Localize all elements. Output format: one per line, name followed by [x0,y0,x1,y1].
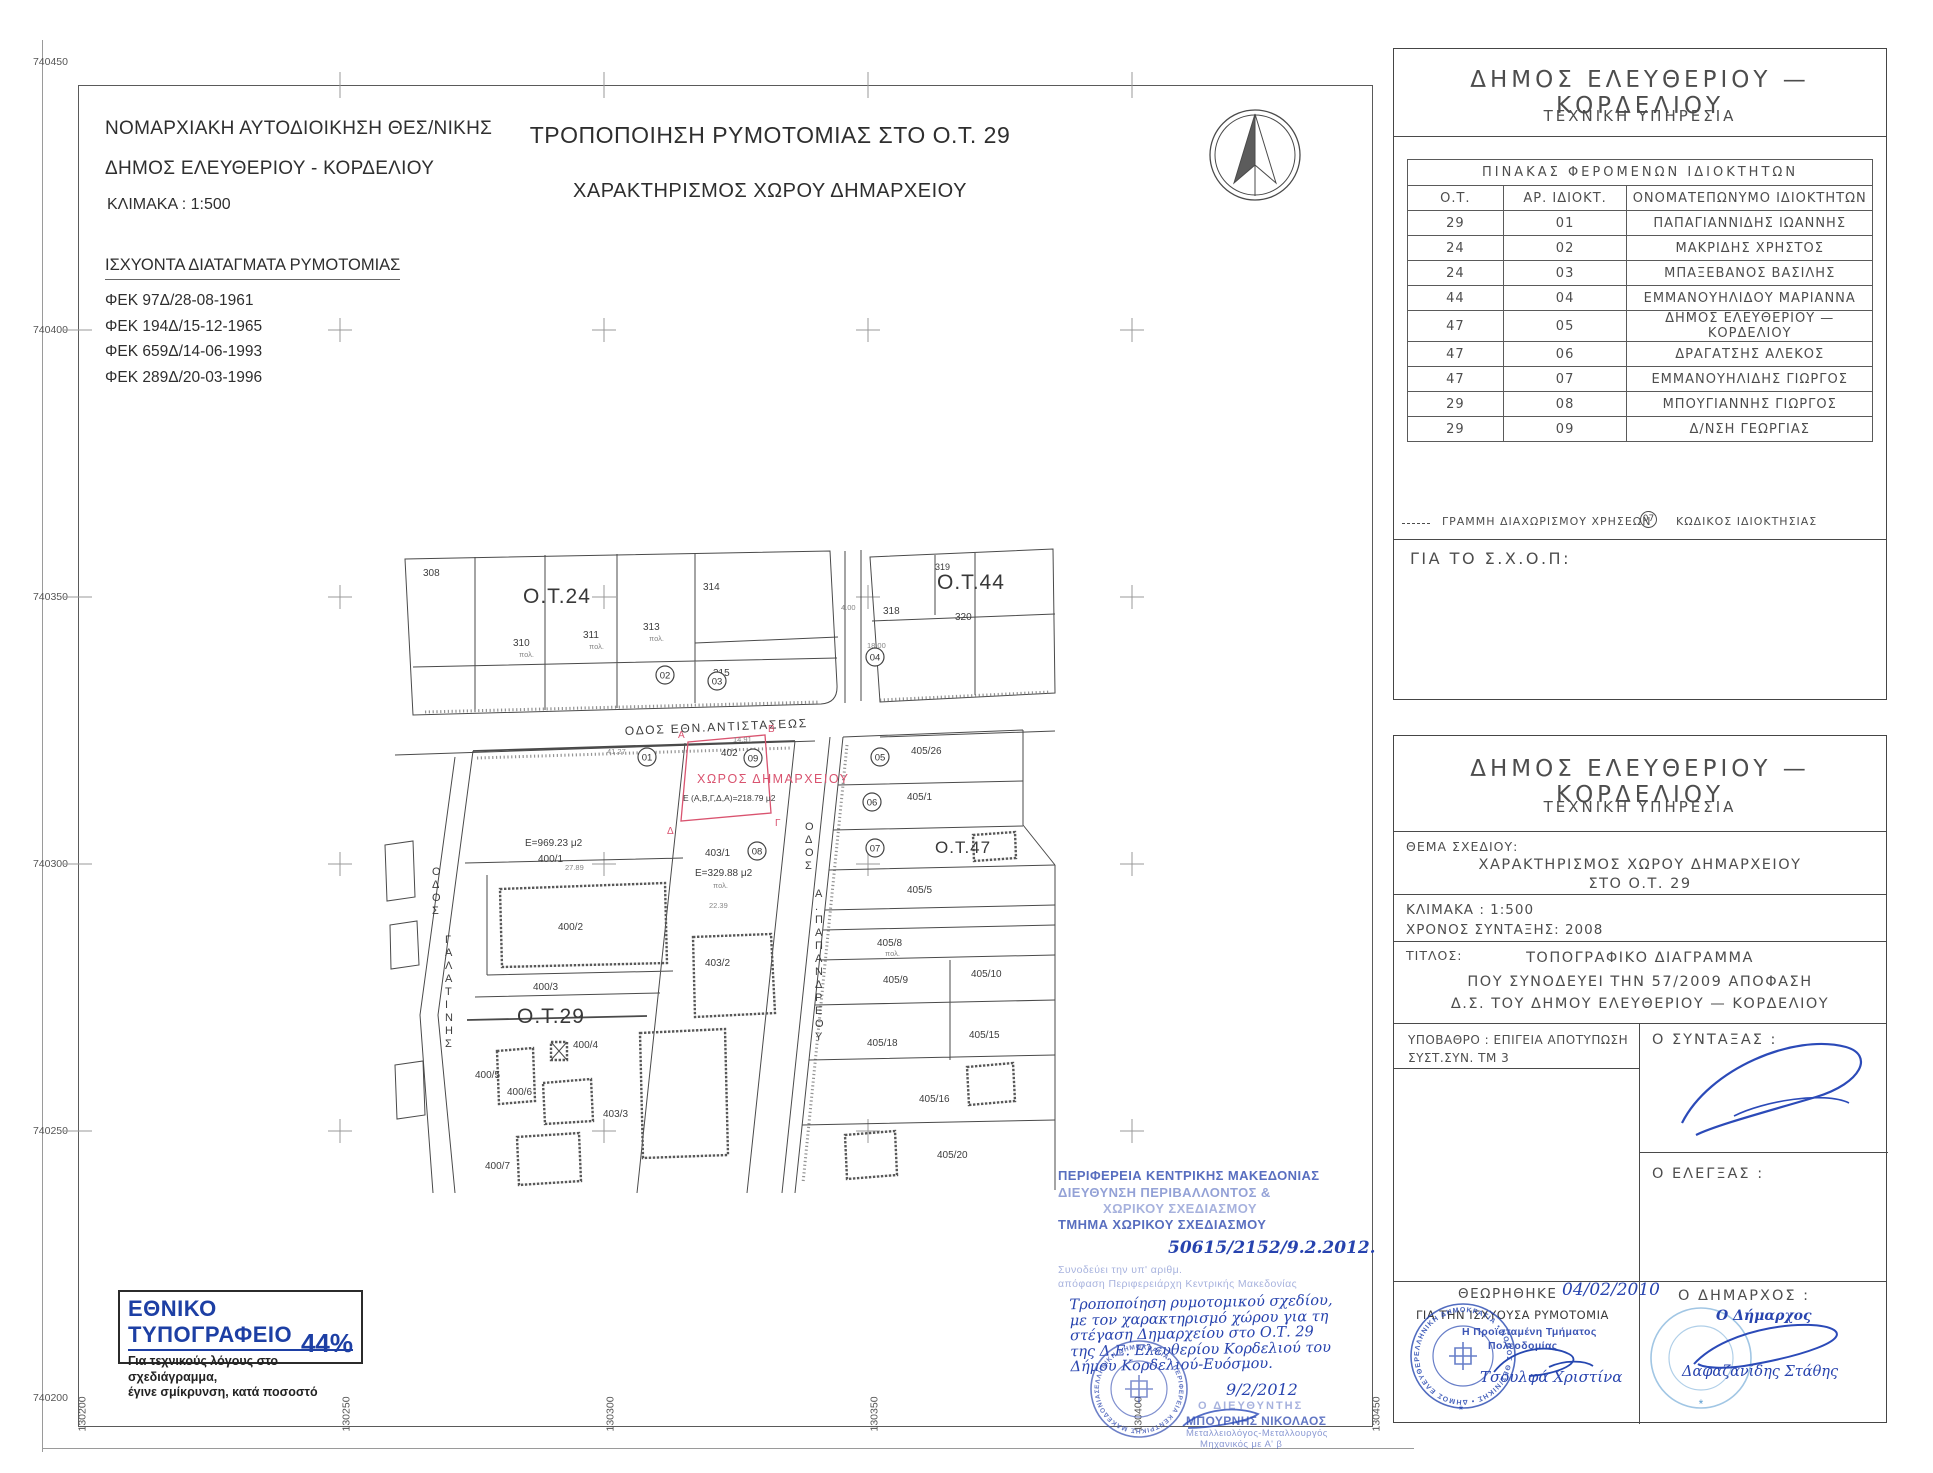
code-06: 06 [863,793,881,811]
code-03: 03 [708,672,726,690]
decree-item: ΦΕΚ 97Δ/28-08-1961 [105,288,400,314]
svg-text:03: 03 [712,677,723,688]
titlos-line1: ΤΟΠΟΓΡΑΦΙΚΟ ΔΙΑΓΡΑΜΜΑ [1394,950,1886,966]
parcel-314: 314 [703,582,720,593]
decrees-heading: ΙΣΧΥΟΝΤΑ ΔΙΑΤΑΓΜΑΤΑ ΡΥΜΟΤΟΜΙΑΣ [105,256,400,280]
table-row: 2402ΜΑΚΡΙΔΗΣ ΧΡΗΣΤΟΣ [1408,236,1873,261]
drawing-sheet: 740450 740400 740350 740300 740250 74020… [0,0,1933,1473]
syntaxas-signature [1674,1031,1879,1146]
legend-ownership-code: ΚΩΔΙΚΟΣ ΙΔΙΟΚΤΗΣΙΑΣ [1676,515,1817,528]
region-line2: ΔΙΕΥΘΥΝΣΗ ΠΕΡΙΒΑΛΛΟΝΤΟΣ & [1058,1185,1271,1200]
authority-line: ΝΟΜΑΡΧΙΑΚΗ ΑΥΤΟΔΙΟΙΚΗΣΗ ΘΕΣ/ΝΙΚΗΣ [105,118,492,140]
dim-27-89: 27.89 [565,863,584,872]
titlos-line3: Δ.Σ. ΤΟΥ ΔΗΜΟΥ ΕΛΕΥΘΕΡΙΟΥ — ΚΟΡΔΕΛΙΟΥ [1394,996,1886,1012]
col-header-name: ΟΝΟΜΑΤΕΠΩΝΥΜΟ ΙΔΙΟΚΤΗΤΩΝ [1627,186,1873,211]
table-row: 2908ΜΠΟΥΓΙΑΝΝΗΣ ΓΙΩΡΓΟΣ [1408,392,1873,417]
svg-text:02: 02 [660,671,671,682]
table-row: 4705ΔΗΜΟΣ ΕΛΕΥΘΕΡΙΟΥ — ΚΟΡΔΕΛΙΟΥ [1408,311,1873,342]
parcel-400-5: 400/5 [475,1070,500,1081]
pol-note: πολ. [713,881,728,890]
municipality-line: ΔΗΜΟΣ ΕΛΕΥΘΕΡΙΟΥ - ΚΟΡΔΕΛΙΟΥ [105,158,434,180]
table-row: 4706ΔΡΑΓΑΤΣΗΣ ΑΛΕΚΟΣ [1408,342,1873,367]
parcel-400-1: 400/1 [538,854,563,865]
area-403-1: Ε=329.88 μ2 [695,868,753,879]
ypovathro-label: ΥΠΟΒΑΘΡΟ : ΕΠΙΓΕΙΑ ΑΠΟΤΥΠΩΣΗ [1408,1033,1628,1047]
pol-note: πολ. [885,949,900,958]
parcel-405-8: 405/8 [877,938,902,949]
code-09: 09 [744,749,762,767]
table-row: 4404ΕΜΜΑΝΟΥΗΛΙΔΟΥ ΜΑΡΙΑΝΝΑ [1408,286,1873,311]
parcel-403-3: 403/3 [603,1109,628,1120]
scale-value: ΚΛΙΜΑΚΑ : 1:500 [1406,902,1534,918]
parcel-311: 311 [583,630,599,641]
parcel-405-9: 405/9 [883,975,908,986]
owners-panel: ΔΗΜΟΣ ΕΛΕΥΘΕΡΙΟΥ — ΚΟΡΔΕΛΙΟΥ ΤΕΧΝΙΚΗ ΥΠΗ… [1393,48,1887,700]
parcel-405-20: 405/20 [937,1150,968,1161]
scale-line: ΚΛΙΜΑΚΑ : 1:500 [107,196,231,214]
dashed-line-sample [1402,523,1430,524]
elegxas-label: Ο ΕΛΕΓΞΑΣ : [1652,1166,1764,1182]
parcel-400-6: 400/6 [507,1087,532,1098]
svg-text:01: 01 [642,753,653,764]
town-hall-area: Ε (Α,Β,Γ,Δ,Α)=218.79 μ2 [683,793,776,803]
region-date: 9/2/2012 [1226,1380,1298,1399]
code-08: 08 [748,842,766,860]
panel-dept: ΤΕΧΝΙΚΗ ΥΠΗΡΕΣΙΑ [1394,798,1886,816]
parcel-400-4: 400/4 [573,1040,598,1051]
svg-text:07: 07 [870,844,881,855]
area-400-1: Ε=969.23 μ2 [525,838,583,849]
corner-g: Γ [775,818,781,829]
parcel-320: 320 [955,612,972,623]
svg-text:05: 05 [875,753,886,764]
national-printing-office-box: ΕΘΝΙΚΟ ΤΥΠΟΓΡΑΦΕΙΟ Για τεχνικούς λόγους … [118,1290,363,1364]
thema-line2: ΣΤΟ Ο.Τ. 29 [1394,876,1886,892]
corner-a: Α [678,730,685,741]
north-arrow-icon [1205,105,1305,205]
owners-table-title: ΠΙΝΑΚΑΣ ΦΕΡΟΜΕΝΩΝ ΙΔΙΟΚΤΗΤΩΝ [1408,160,1873,186]
svg-text:06: 06 [867,798,878,809]
decree-item: ΦΕΚ 289Δ/20-03-1996 [105,365,400,391]
parcel-313: 313 [643,622,660,633]
street-label-papandreou: Α.ΠΑΠΑΝΔΡΕΟΥ [815,888,824,1043]
code-05: 05 [871,748,889,766]
street-label-galatinis: ΓΑΛΑΤΙΝΗΣ [445,934,453,1050]
hellenic-republic-stamp-icon: ΕΛΛΗΝΙΚΗ ΔΗΜΟΚΡΑΤΙΑ • ΠΕΡΙΦΕΡΕΙΑ ΚΕΝΤΡΙΚ… [1082,1332,1197,1447]
cadastral-map: Ο.Τ.24 Ο.Τ.44 Ο.Τ.29 Ο.Τ.47 ΟΔΟΣ ΕΘΝ.ΑΝΤ… [375,545,1225,1215]
table-row: 4707ΕΜΜΑΝΟΥΗΛΙΔΗΣ ΓΙΩΡΓΟΣ [1408,367,1873,392]
for-schop-label: ΓΙΑ ΤΟ Σ.Χ.Ο.Π: [1410,549,1571,568]
syst-label: ΣΥΣΤ.ΣΥΝ. ΤΜ 3 [1408,1051,1509,1065]
parcel-405-1: 405/1 [907,792,932,803]
block-label-ot29: Ο.Τ.29 [517,1005,585,1028]
year-value: ΧΡΟΝΟΣ ΣΥΝΤΑΞΗΣ: 2008 [1406,922,1603,938]
svg-text:09: 09 [748,754,759,765]
parcel-319: 319 [935,562,950,572]
dim-41-27: 41.27 [607,747,626,756]
table-row: 2901ΠΑΠΑΓΙΑΝΝΙΔΗΣ ΙΩΑΝΝΗΣ [1408,211,1873,236]
stamp-star: * [1459,1403,1464,1417]
col-header-ot: Ο.Τ. [1408,186,1504,211]
parcel-405-10: 405/10 [971,969,1002,980]
parcel-405-15: 405/15 [969,1030,1000,1041]
page-subtitle: ΧΑΡΑΚΤΗΡΙΣΜΟΣ ΧΩΡΟΥ ΔΗΜΑΡΧΕΙΟΥ [460,180,1080,203]
street-label-odos-galatinis-1: ΟΔΟΣ [432,866,441,917]
pol-note: πολ. [589,642,604,651]
parcel-405-16: 405/16 [919,1094,950,1105]
parcel-402: 402 [721,748,738,759]
legend-uses-line: ΓΡΑΜΜΗ ΔΙΑΧΩΡΙΣΜΟΥ ΧΡΗΣΕΩΝ [1442,515,1651,528]
pol-note: πολ. [519,650,534,659]
region-faint2: απόφαση Περιφερειάρχη Κεντρικής Μακεδονί… [1058,1278,1297,1290]
block-label-ot24: Ο.Τ.24 [523,585,591,608]
decree-item: ΦΕΚ 659Δ/14-06-1993 [105,339,400,365]
parcel-310: 310 [513,638,530,649]
pol-note: πολ. [649,634,664,643]
title-block-panel: ΔΗΜΟΣ ΕΛΕΥΘΕΡΙΟΥ — ΚΟΡΔΕΛΙΟΥ ΤΕΧΝΙΚΗ ΥΠΗ… [1393,735,1887,1423]
reduction-percent: 44% [301,1328,353,1359]
region-line3: ΧΩΡΙΚΟΥ ΣΧΕΔΙΑΣΜΟΥ [1103,1201,1257,1216]
street-label-odos-papandreou-1: ΟΔΟΣ [805,821,814,872]
parcel-400-3: 400/3 [533,982,558,993]
col-header-ar: ΑΡ. ΙΔΙΟΚΤ. [1503,186,1627,211]
decree-item: ΦΕΚ 194Δ/15-12-1965 [105,314,400,340]
dim-4-00: 4.00 [841,603,856,612]
protocol-number: 50615/2152/9.2.2012. [1168,1238,1376,1258]
thema-label: ΘΕΜΑ ΣΧΕΔΙΟΥ: [1406,839,1518,854]
block-label-ot44: Ο.Τ.44 [937,571,1005,594]
thema-line1: ΧΑΡΑΚΤΗΡΙΣΜΟΣ ΧΩΡΟΥ ΔΗΜΑΡΧΕΙΟΥ [1394,857,1886,873]
parcel-405-18: 405/18 [867,1038,898,1049]
code-01: 01 [638,748,656,766]
svg-text:08: 08 [752,847,763,858]
page-title: ΤΡΟΠΟΠΟΙΗΣΗ ΡΥΜΟΤΟΜΙΑΣ ΣΤΟ Ο.Τ. 29 [460,122,1080,149]
parcel-405-5: 405/5 [907,885,932,896]
table-row: 2909Δ/ΝΣΗ ΓΕΩΡΓΙΑΣ [1408,417,1873,442]
region-line1: ΠΕΡΙΦΕΡΕΙΑ ΚΕΝΤΡΙΚΗΣ ΜΑΚΕΔΟΝΙΑΣ [1058,1168,1319,1183]
table-row: 2403ΜΠΑΞΕΒΑΝΟΣ ΒΑΣΙΛΗΣ [1408,261,1873,286]
code-07: 07 [866,839,884,857]
printing-office-line2: έγινε σμίκρυνση, κατά ποσοστό [128,1385,353,1401]
legend-code-badge: 07 [1640,511,1657,528]
stamp-star: * [1699,1397,1704,1411]
corner-d: Δ [667,826,674,837]
corner-b: Β [768,724,775,735]
region-faint1: Συνοδεύει την υπ' αριθμ. [1058,1264,1182,1276]
town-hall-label: ΧΩΡΟΣ ΔΗΜΑΡΧΕΙΟΥ [697,772,850,786]
code-04: 04 [866,648,884,666]
dim-22-39: 22.39 [709,901,728,910]
dimarxos-name: Δαφαζανίδης Στάθης [1682,1364,1838,1380]
proistameni-line1: Η Προϊσταμένη Τμήματος [1462,1326,1597,1338]
code-02: 02 [656,666,674,684]
street-label-ethn-antistaseos: ΟΔΟΣ ΕΘΝ.ΑΝΤΙΣΤΑΣΕΩΣ [625,716,809,738]
parcel-400-2: 400/2 [558,922,583,933]
parcel-403-2: 403/2 [705,958,730,969]
region-line4: ΤΜΗΜΑ ΧΩΡΙΚΟΥ ΣΧΕΔΙΑΣΜΟΥ [1058,1217,1266,1232]
panel-dept: ΤΕΧΝΙΚΗ ΥΠΗΡΕΣΙΑ [1394,107,1886,125]
titlos-line2: ΠΟΥ ΣΥΝΟΔΕΥΕΙ ΤΗΝ 57/2009 ΑΠΟΦΑΣΗ [1394,974,1886,990]
director-cred2: Μηχανικός με Α' β [1200,1439,1282,1450]
parcel-405-26: 405/26 [911,746,942,757]
proistameni-name: Τσουλφά Χριστίνα [1480,1368,1622,1386]
block-label-ot47: Ο.Τ.47 [935,838,991,857]
svg-text:04: 04 [870,653,881,664]
parcel-308: 308 [423,568,440,579]
parcel-318: 318 [883,606,900,617]
parcel-400-7: 400/7 [485,1161,510,1172]
parcel-403-1: 403/1 [705,848,730,859]
dim-14-91: 14.91 [733,735,752,744]
owners-table: ΠΙΝΑΚΑΣ ΦΕΡΟΜΕΝΩΝ ΙΔΙΟΚΤΗΤΩΝ Ο.Τ. ΑΡ. ΙΔ… [1407,159,1873,442]
